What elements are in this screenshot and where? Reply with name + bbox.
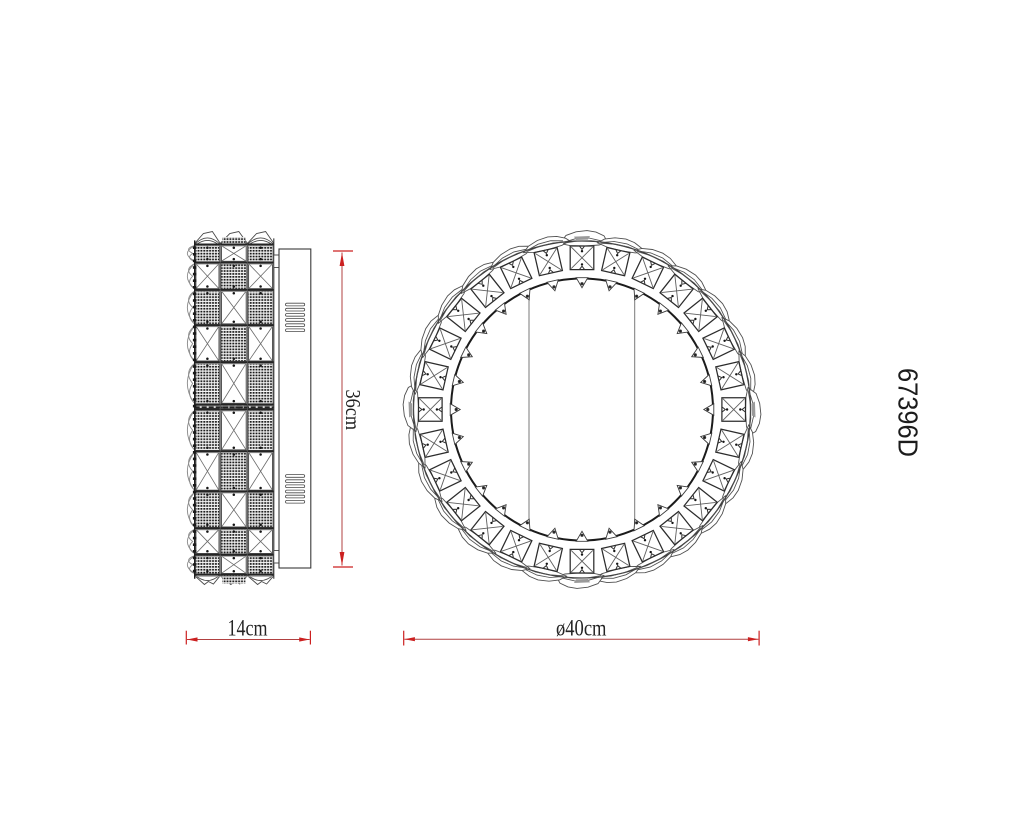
svg-text:36cm: 36cm bbox=[341, 390, 365, 431]
svg-text:14cm: 14cm bbox=[228, 616, 268, 642]
svg-text:ø40cm: ø40cm bbox=[556, 616, 607, 642]
svg-text:67396D: 67396D bbox=[893, 368, 924, 457]
